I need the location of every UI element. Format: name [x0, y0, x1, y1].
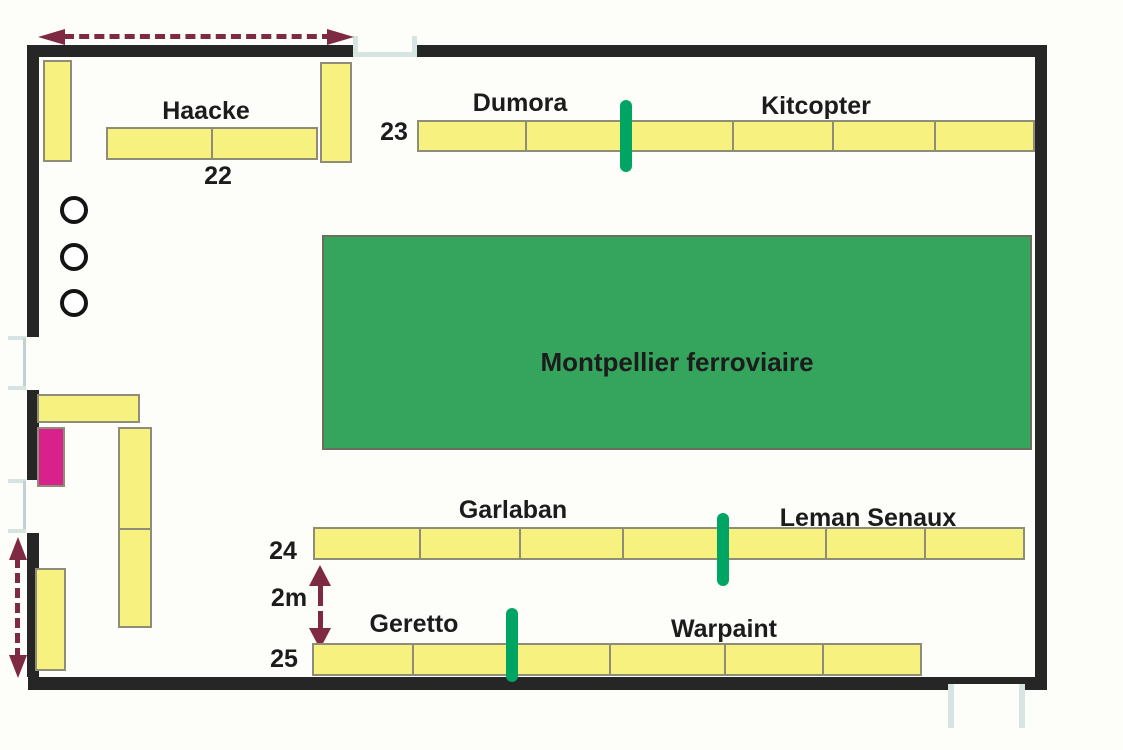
- exhibitor-label-haacke: Haacke: [162, 97, 250, 125]
- stand-row-22-right-cap: [320, 62, 352, 163]
- pillar-circle: [60, 243, 88, 271]
- exhibitor-label-garlaban: Garlaban: [459, 496, 567, 524]
- left-opening-2-door-leaf: [23, 481, 26, 531]
- top-aisle-dashed-line: [64, 34, 332, 39]
- wall-left-upper-segment: [27, 45, 39, 337]
- exhibitor-label-warpaint: Warpaint: [671, 615, 777, 643]
- stand-divider: [622, 529, 624, 558]
- exhibitor-label-leman-senaux: Leman Senaux: [780, 504, 956, 532]
- stand-number-25: 25: [270, 645, 298, 673]
- stand-divider: [525, 122, 527, 150]
- wall-bottom-threshold: [950, 677, 1025, 684]
- stand-row-22: [106, 127, 318, 160]
- top-aisle-arrowhead-right-icon: [327, 29, 354, 45]
- exhibitor-label-kitcopter: Kitcopter: [761, 92, 871, 120]
- stand-divider: [519, 529, 521, 558]
- zone-label: Montpellier ferroviaire: [324, 347, 1030, 378]
- zone-montpellier-ferroviaire: Montpellier ferroviaire: [322, 235, 1032, 450]
- stand-divider: [412, 645, 414, 674]
- wall-top-left-segment: [28, 45, 353, 57]
- left-aisle-arrowhead-down-icon: [9, 655, 27, 678]
- left-aisle-dashed-line: [15, 558, 20, 658]
- left-stand-column: [118, 427, 152, 628]
- left-opening-1-bottom-tick: [8, 386, 26, 390]
- stand-divider: [732, 122, 734, 150]
- stand-row-23: [417, 120, 1035, 152]
- stand-divider: [419, 529, 421, 558]
- stand-number-22: 22: [204, 162, 232, 190]
- aisle-width-arrow-up-stem: [318, 584, 323, 606]
- stand-divider: [934, 122, 936, 150]
- stand-row-25: [312, 643, 922, 676]
- stand-divider: [609, 645, 611, 674]
- wall-bottom-right-segment: [1025, 677, 1047, 690]
- green-divider-row-23: [620, 100, 632, 172]
- left-aisle-arrowhead-up-icon: [9, 537, 27, 560]
- stand-number-24: 24: [269, 537, 297, 565]
- stand-divider: [924, 529, 926, 558]
- stand-number-23: 23: [380, 118, 408, 146]
- wall-bottom-left-segment: [28, 677, 950, 690]
- stand-row-22-left-cap: [43, 60, 72, 162]
- stand-divider: [724, 645, 726, 674]
- bottom-door-left-jamb: [948, 684, 954, 728]
- exhibitor-label-geretto: Geretto: [370, 610, 459, 638]
- left-opening-1-door-leaf: [23, 338, 26, 388]
- top-door-sill: [353, 52, 417, 57]
- green-divider-row-25: [506, 608, 518, 682]
- aisle-width-arrow-up-icon: [309, 565, 331, 586]
- stand-divider: [120, 528, 150, 530]
- exhibitor-label-dumora: Dumora: [473, 89, 567, 117]
- wall-right: [1035, 45, 1047, 690]
- bottom-door-right-jamb: [1019, 684, 1025, 728]
- stand-divider: [211, 129, 213, 158]
- top-aisle-arrowhead-left-icon: [38, 29, 65, 45]
- floor-plan: Montpellier ferroviaire Haack: [0, 0, 1123, 750]
- stand-divider: [832, 122, 834, 150]
- left-stand-lower-block: [35, 568, 66, 671]
- top-door-right-jamb: [412, 36, 417, 57]
- pillar-circle: [60, 289, 88, 317]
- pink-stand: [37, 427, 65, 487]
- left-opening-2-bottom-tick: [8, 529, 26, 533]
- aisle-width-label: 2m: [271, 584, 307, 612]
- green-divider-row-24: [717, 513, 729, 586]
- aisle-width-arrow-down-stem: [318, 611, 323, 629]
- stand-divider: [825, 529, 827, 558]
- pillar-circle: [60, 196, 88, 224]
- stand-divider: [822, 645, 824, 674]
- left-stand-horizontal-bar: [37, 394, 140, 423]
- wall-top-right-segment: [417, 45, 1047, 57]
